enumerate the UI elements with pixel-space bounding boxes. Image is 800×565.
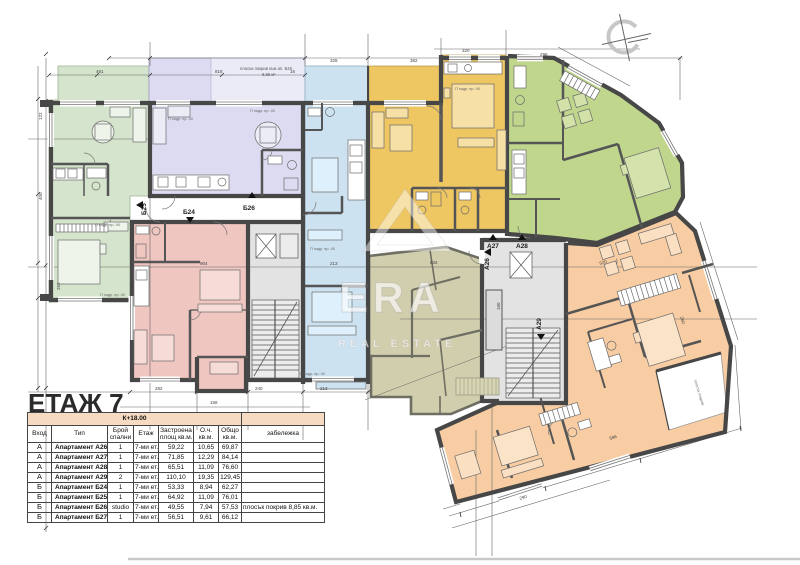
svg-text:П подр. пр. 40: П подр. пр. 40 bbox=[300, 372, 325, 376]
svg-text:плоска покрив към ап. Б26: плоска покрив към ап. Б26 bbox=[240, 66, 293, 71]
svg-text:ERA: ERA bbox=[339, 274, 445, 322]
svg-text:А26: А26 bbox=[484, 258, 491, 270]
svg-text:240: 240 bbox=[255, 386, 263, 391]
svg-text:REAL ESTATE: REAL ESTATE bbox=[338, 338, 457, 350]
svg-text:122: 122 bbox=[38, 112, 43, 120]
svg-text:А29: А29 bbox=[536, 318, 543, 330]
svg-text:328: 328 bbox=[330, 58, 338, 63]
svg-text:382: 382 bbox=[410, 58, 418, 63]
svg-text:16: 16 bbox=[290, 69, 296, 74]
svg-text:298: 298 bbox=[540, 52, 548, 57]
svg-text:282: 282 bbox=[155, 386, 163, 391]
svg-text:Б24: Б24 bbox=[183, 209, 195, 216]
svg-text:634: 634 bbox=[430, 260, 438, 265]
svg-text:А27: А27 bbox=[487, 243, 499, 250]
svg-text:818: 818 bbox=[215, 69, 223, 74]
svg-text:213: 213 bbox=[320, 386, 328, 391]
svg-text:158: 158 bbox=[210, 400, 218, 405]
svg-text:П подр. пр. 40: П подр. пр. 40 bbox=[310, 247, 335, 251]
svg-text:Б26: Б26 bbox=[243, 205, 255, 212]
svg-text:П подр. пр. 40: П подр. пр. 40 bbox=[95, 223, 120, 227]
svg-text:П подр. пр. 40: П подр. пр. 40 bbox=[455, 87, 480, 91]
svg-text:А28: А28 bbox=[516, 243, 528, 250]
svg-text:160: 160 bbox=[496, 302, 501, 310]
svg-text:П подр. пр. 40: П подр. пр. 40 bbox=[100, 293, 125, 297]
svg-text:8,85 м²: 8,85 м² bbox=[262, 72, 276, 77]
svg-text:904: 904 bbox=[200, 261, 208, 266]
svg-text:213: 213 bbox=[330, 261, 338, 266]
svg-text:400: 400 bbox=[38, 192, 43, 200]
svg-text:П подр. пр. 40: П подр. пр. 40 bbox=[168, 117, 193, 121]
svg-text:282: 282 bbox=[56, 282, 61, 290]
svg-text:П подр. пр. 40: П подр. пр. 40 bbox=[250, 109, 275, 113]
svg-text:491: 491 bbox=[96, 69, 104, 74]
svg-text:320: 320 bbox=[462, 48, 470, 53]
